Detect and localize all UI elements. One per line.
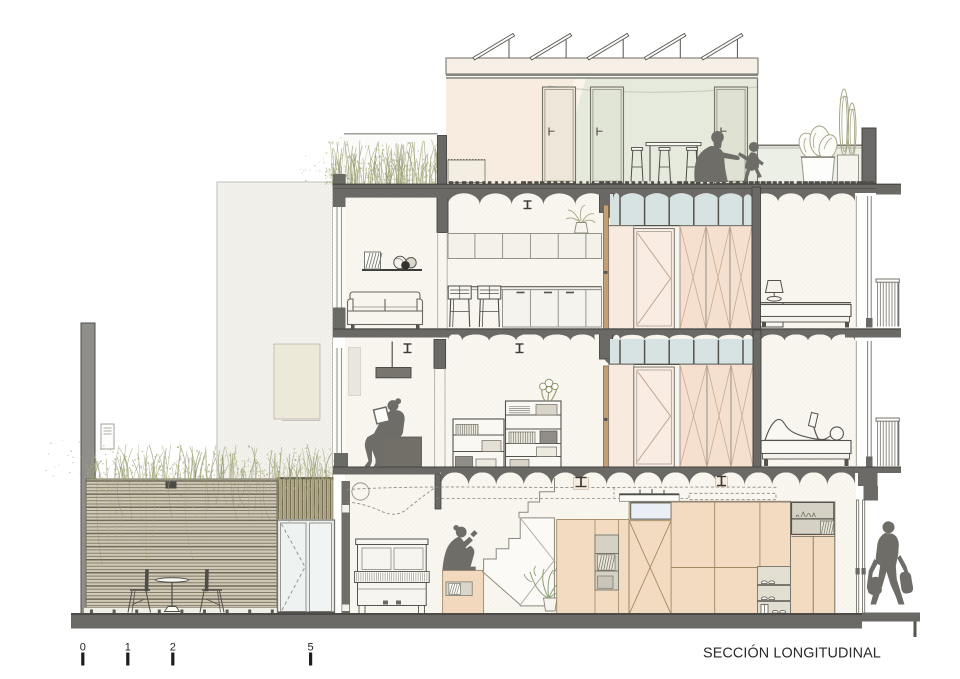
svg-text:SECCIÓN LONGITUDINAL: SECCIÓN LONGITUDINAL [703,645,881,662]
svg-text:0: 0 [80,642,86,654]
svg-text:1: 1 [125,642,131,654]
svg-text:5: 5 [308,642,314,654]
svg-text:2: 2 [170,642,176,654]
